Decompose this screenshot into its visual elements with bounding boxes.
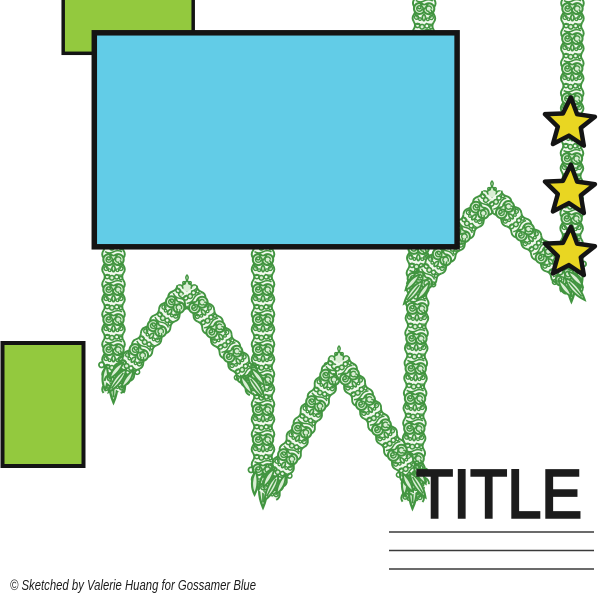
svg-text:TITLE: TITLE — [416, 457, 582, 533]
svg-text:© Sketched by Valerie Huang fo: © Sketched by Valerie Huang for Gossamer… — [10, 578, 256, 594]
